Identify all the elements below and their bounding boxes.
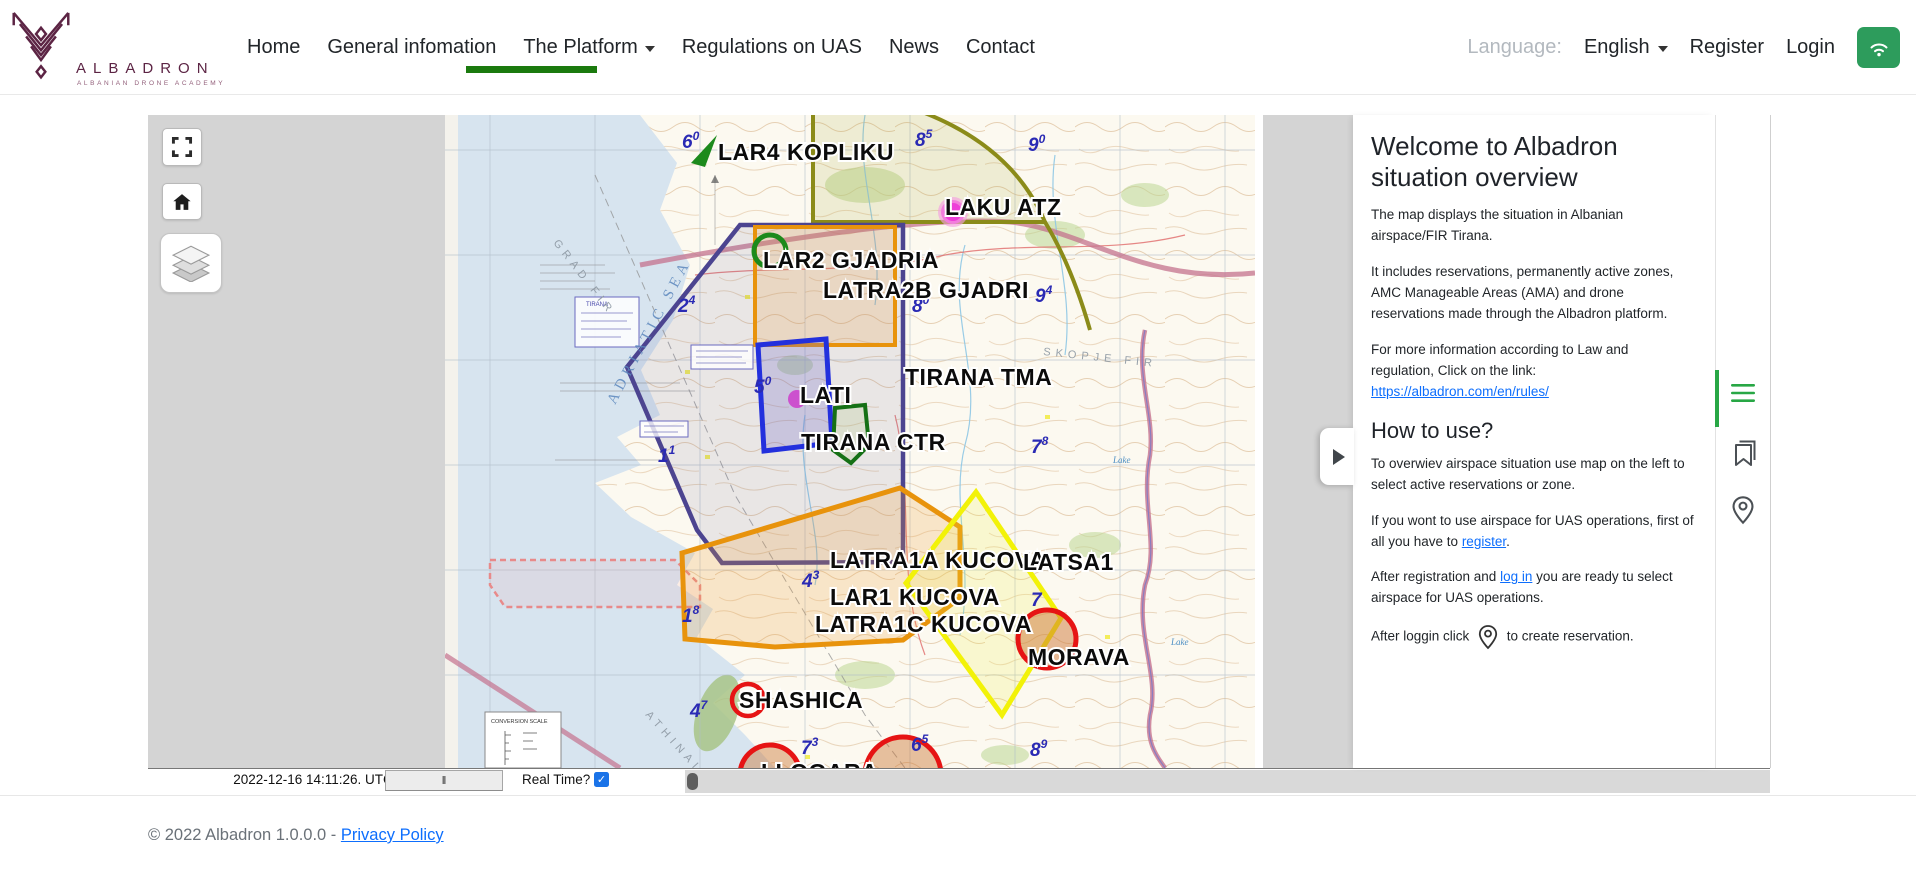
map-canvas[interactable]: TIRANA CONVERSION SCALE ADRIATIC SEA SKO…: [445, 115, 1255, 768]
fullscreen-icon: [170, 135, 194, 159]
copyright-text: © 2022 Albadron 1.0.0.0 -: [148, 826, 341, 844]
realtime-label: Real Time?: [522, 772, 590, 787]
zone-label: LATRA1C KUCOVA: [815, 611, 1032, 637]
fullscreen-button[interactable]: [162, 128, 202, 166]
howto-title: How to use?: [1371, 418, 1695, 444]
map-edge: [1255, 115, 1263, 768]
chevron-down-icon: [645, 46, 655, 52]
time-scrollbar[interactable]: [685, 770, 1770, 793]
zone-label: TIRANA CTR: [801, 429, 946, 455]
location-pin-icon: [1476, 624, 1500, 650]
panel-paragraph: To overwiev airspace situation use map o…: [1371, 454, 1695, 496]
panel-paragraph: After registration and log in you are re…: [1371, 567, 1695, 609]
privacy-policy-link[interactable]: Privacy Policy: [341, 826, 444, 844]
connection-status-button[interactable]: [1857, 27, 1900, 68]
panel-collapse-button[interactable]: [1320, 428, 1354, 485]
brand-subtitle: ALBANIAN DRONE ACADEMY: [77, 80, 225, 87]
header: ALBADRON ALBANIAN DRONE ACADEMY Home Gen…: [0, 0, 1916, 95]
zone-label: TIRANA TMA: [905, 364, 1052, 390]
nav-the-platform[interactable]: The Platform: [523, 36, 654, 59]
header-right: Language: English Register Login: [1467, 0, 1900, 95]
chevron-down-icon: [1658, 46, 1668, 52]
chart-grid-number: 7: [1031, 590, 1043, 611]
panel-paragraph: The map displays the situation in Albani…: [1371, 205, 1695, 247]
footer: © 2022 Albadron 1.0.0.0 - Privacy Policy: [148, 826, 444, 845]
home-icon: [171, 191, 193, 213]
panel-paragraph: For more information according to Law an…: [1371, 340, 1695, 403]
zone-label: LATRA1A KUCOVA: [830, 547, 1046, 573]
language-label: Language:: [1467, 36, 1562, 59]
zone-label: LATI: [800, 382, 851, 408]
zone-label: LAR4 KOPLIKU: [718, 139, 894, 165]
login-link[interactable]: Login: [1786, 36, 1835, 59]
wifi-icon: [1867, 36, 1891, 60]
brand-logo[interactable]: ALBADRON ALBANIAN DRONE ACADEMY: [10, 8, 240, 90]
menu-tab-button[interactable]: [1730, 383, 1756, 406]
time-bar: 2022-12-16 14:11:26. UTC ‖ Real Time? ✓: [148, 768, 1770, 793]
active-tab-indicator: [1715, 370, 1719, 427]
layers-button[interactable]: [160, 233, 222, 293]
pause-button[interactable]: ‖: [385, 770, 503, 791]
brand-name: ALBADRON: [76, 60, 215, 77]
layers-icon: [170, 244, 212, 282]
register-link[interactable]: Register: [1690, 36, 1764, 59]
panel-paragraph: It includes reservations, permanently ac…: [1371, 262, 1695, 325]
panel-paragraph: After loggin click to create reservation…: [1371, 624, 1695, 650]
zone-label: LATRA2B GJADRI: [823, 277, 1029, 303]
panel-paragraph: If you wont to use airspace for UAS oper…: [1371, 511, 1695, 553]
panel-title: Welcome to Albadron situation overview: [1371, 131, 1695, 193]
nav-news[interactable]: News: [889, 36, 939, 59]
lake-label: Lake: [1112, 455, 1131, 465]
reservation-tab-button[interactable]: [1729, 495, 1757, 528]
login-inline-link[interactable]: log in: [1500, 569, 1532, 584]
rules-link[interactable]: https://albadron.com/en/rules/: [1371, 384, 1549, 399]
nav-general-information[interactable]: General infomation: [327, 36, 496, 59]
home-view-button[interactable]: [162, 183, 202, 220]
zone-label: MORAVA: [1028, 644, 1130, 670]
info-panel: Welcome to Albadron situation overview T…: [1353, 115, 1715, 768]
conversion-scale-box: CONVERSION SCALE: [485, 712, 561, 768]
active-nav-underline: [466, 66, 597, 73]
main-nav: Home General infomation The Platform Reg…: [247, 0, 1035, 95]
time-scrollbar-thumb[interactable]: [687, 773, 698, 790]
zone-label: LAKU ATZ: [945, 194, 1061, 220]
bookmarks-tab-button[interactable]: [1729, 438, 1757, 471]
location-pin-icon: [1729, 495, 1757, 525]
chevron-right-icon: [1333, 449, 1345, 465]
register-inline-link[interactable]: register: [1462, 534, 1506, 549]
zone-label: LLOGARA: [761, 759, 878, 768]
albadron-wings-icon: [10, 8, 72, 86]
bookmark-icon: [1729, 438, 1757, 468]
zone-label: LATSA1: [1023, 549, 1114, 575]
side-toolbar: [1715, 115, 1771, 768]
hamburger-menu-icon: [1730, 383, 1756, 403]
nav-regulations[interactable]: Regulations on UAS: [682, 36, 862, 59]
nav-home[interactable]: Home: [247, 36, 300, 59]
zone-restricted-dashed[interactable]: [490, 560, 700, 607]
nav-contact[interactable]: Contact: [966, 36, 1035, 59]
zone-label: LAR2 GJADRIA: [763, 247, 939, 273]
lake-label: Lake: [1170, 637, 1189, 647]
zone-label: SHASHICA: [739, 687, 863, 713]
footer-divider: [0, 795, 1916, 796]
realtime-checkbox[interactable]: ✓: [594, 772, 609, 787]
zone-label: LAR1 KUCOVA: [830, 584, 1000, 610]
language-select[interactable]: English: [1584, 36, 1668, 59]
svg-text:CONVERSION SCALE: CONVERSION SCALE: [491, 719, 548, 725]
